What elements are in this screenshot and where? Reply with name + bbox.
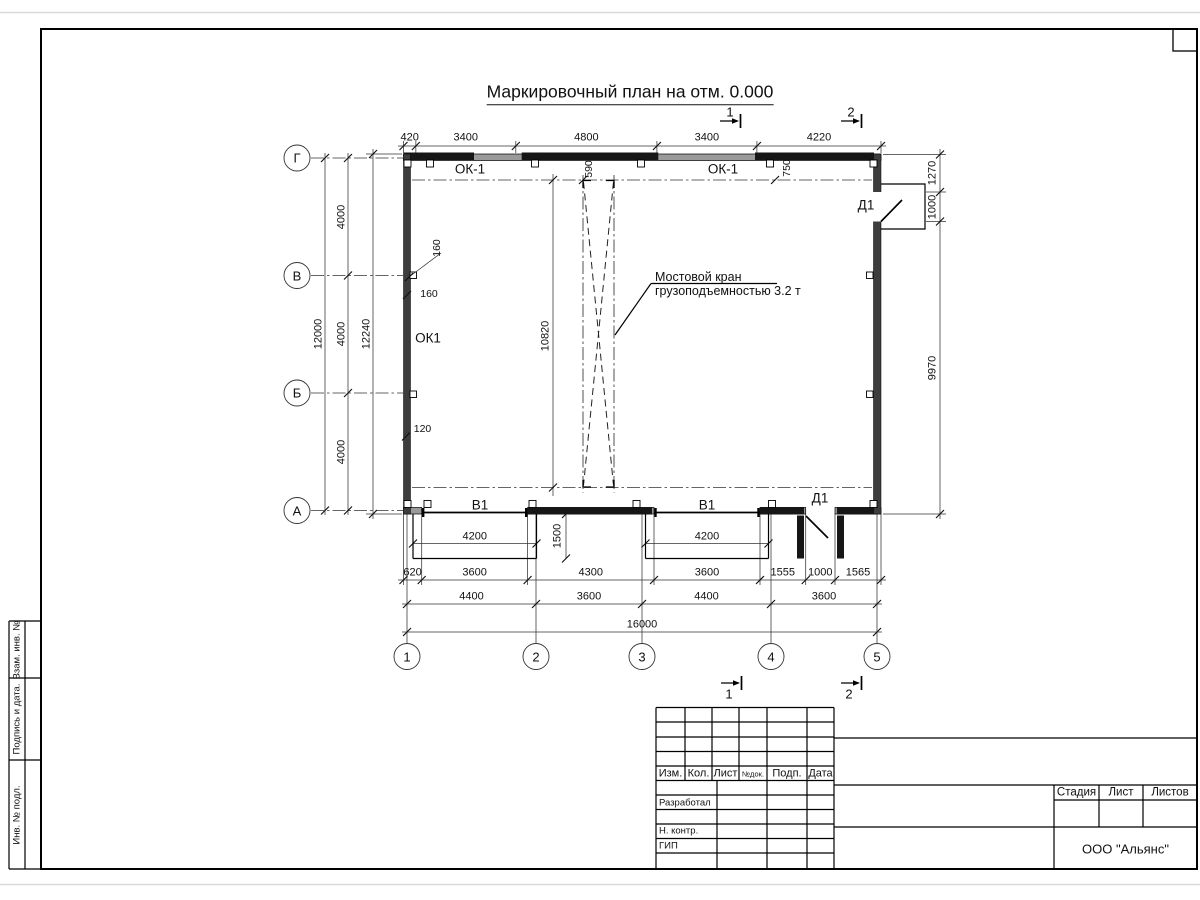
dim-label: 160: [420, 288, 438, 299]
dim-label: 160: [432, 239, 443, 257]
role-label: Разработал: [659, 798, 711, 808]
side-stamp-label: Инв. № подл.: [12, 785, 22, 844]
dim-label: 1565: [846, 567, 870, 578]
axis-col-label: 3: [638, 650, 645, 663]
text-overlay: Взам. инв. №Подпись и дата.Инв. № подл.И…: [0, 0, 1200, 900]
dim-label: 4000: [337, 322, 348, 346]
axis-row-label: Г: [293, 152, 300, 165]
axis-row-label: Б: [293, 387, 302, 400]
dim-label: 12240: [362, 319, 373, 350]
dim-label: 3600: [695, 567, 719, 578]
dim-label: 4200: [695, 531, 719, 542]
dim-label: 9970: [928, 355, 939, 379]
axis-row-label: А: [293, 504, 302, 517]
dim-label: 590: [583, 160, 594, 178]
dim-label: 4300: [579, 567, 603, 578]
drawing-sheet: Взам. инв. №Подпись и дата.Инв. № подл.И…: [0, 0, 1200, 900]
stage-header: Листов: [1151, 787, 1188, 799]
crane-note: Мостовой кран: [655, 271, 741, 284]
titleblock-header: Лист: [714, 768, 738, 779]
dim-label: 620: [403, 567, 421, 578]
section-mark-label: 1: [725, 688, 732, 701]
dim-label: 4000: [337, 204, 348, 228]
room-label: ОК1: [415, 331, 441, 345]
dim-label: 1000: [928, 194, 939, 218]
dim-label: 3600: [577, 591, 601, 602]
axis-col-label: 1: [403, 650, 410, 663]
dim-label: 4200: [463, 531, 487, 542]
titleblock-header: Изм.: [659, 768, 683, 779]
dim-label: 4220: [807, 133, 831, 144]
section-mark-label: 1: [726, 105, 733, 118]
dim-label: 12000: [314, 319, 325, 350]
axis-col-label: 2: [532, 650, 539, 663]
role-label: ГИП: [659, 841, 678, 851]
titleblock-header: Дата: [808, 768, 832, 779]
dim-label: 750: [781, 159, 792, 177]
window-label: ОК-1: [708, 162, 738, 176]
section-mark-label: 2: [845, 688, 852, 701]
dim-label: 1500: [552, 524, 563, 548]
dim-label: 1000: [808, 567, 832, 578]
dim-label: 420: [401, 133, 419, 144]
dim-label: 3400: [454, 133, 478, 144]
axis-col-label: 4: [767, 650, 774, 663]
role-label: Н. контр.: [659, 826, 698, 836]
dim-label: 120: [414, 424, 432, 435]
window-label: ОК-1: [455, 162, 485, 176]
titleblock-header: №док.: [742, 770, 764, 778]
dim-label: 1555: [771, 567, 795, 578]
section-mark-label: 2: [847, 105, 854, 118]
stage-header: Стадия: [1057, 787, 1096, 799]
dim-label: 3600: [812, 591, 836, 602]
drawing-title: Маркировочный план на отм. 0.000: [487, 83, 774, 105]
titleblock-header: Кол.: [688, 768, 710, 779]
side-stamp-label: Взам. инв. №: [12, 620, 22, 679]
dim-label: 10820: [541, 321, 552, 352]
company-name: ООО "Альянс": [1082, 842, 1169, 855]
dim-label: 1270: [928, 161, 939, 185]
gate-label: В1: [472, 498, 489, 512]
axis-row-label: В: [293, 269, 302, 282]
dim-label: 4000: [337, 439, 348, 463]
dim-label: 3600: [462, 567, 486, 578]
axis-col-label: 5: [873, 650, 880, 663]
side-stamp-label: Подпись и дата.: [12, 684, 22, 755]
dim-label: 4800: [574, 133, 598, 144]
titleblock-header: Подп.: [772, 768, 801, 779]
door-label: Д1: [812, 491, 829, 505]
gate-label: В1: [699, 498, 716, 512]
crane-note: грузоподъемностью 3.2 т: [655, 284, 801, 297]
door-label: Д1: [858, 198, 875, 212]
dim-label: 4400: [459, 591, 483, 602]
stage-header: Лист: [1109, 787, 1134, 799]
dim-label: 3400: [695, 133, 719, 144]
dim-label: 4400: [694, 591, 718, 602]
dim-label: 16000: [627, 619, 658, 630]
